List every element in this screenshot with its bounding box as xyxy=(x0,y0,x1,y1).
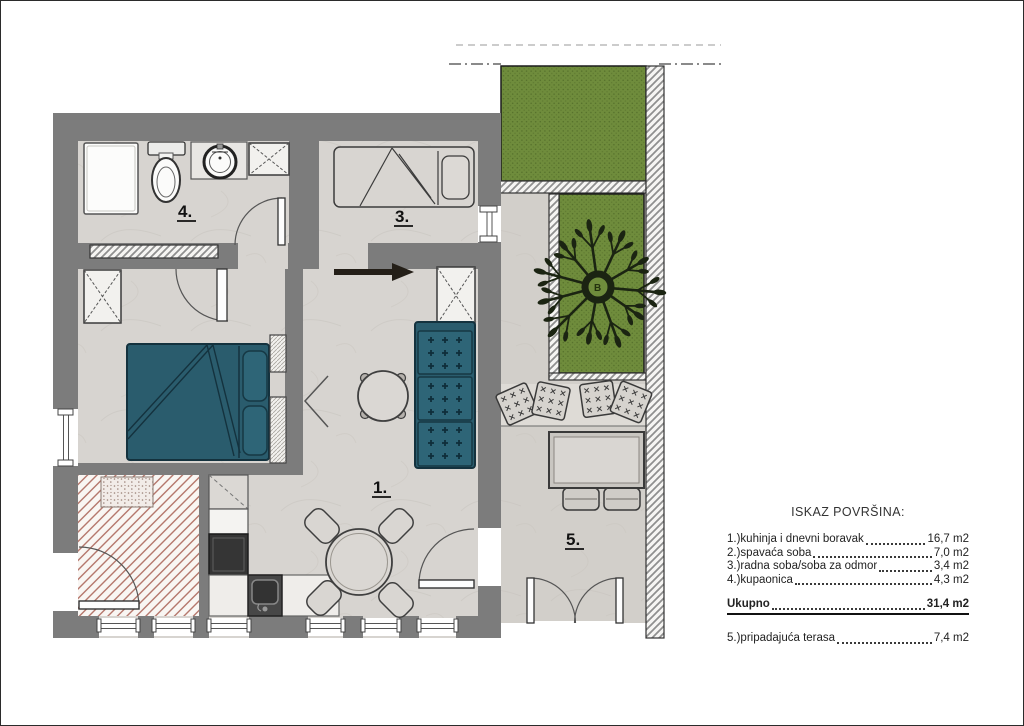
bathroom-wall-partition-hatch xyxy=(90,245,218,258)
legend-terrace-row: 5.)pripadajuća terasa7,4 m2 xyxy=(727,632,969,646)
tree-label: B xyxy=(594,283,601,294)
nightstand-bottom xyxy=(270,397,286,463)
vestibule-cabinet xyxy=(101,477,153,507)
label-work-room: 3. xyxy=(395,207,409,226)
bathroom-sink xyxy=(191,142,247,179)
label-bathroom: 4. xyxy=(178,202,192,221)
legend-row: 2.)spavaća soba7,0 m2 xyxy=(727,547,969,561)
wardrobe-hall xyxy=(437,267,475,324)
area-legend: ISKAZ POVRŠINA: 1.)kuhinja i dnevni bora… xyxy=(727,505,969,646)
single-bed xyxy=(334,147,474,207)
shower xyxy=(84,143,138,214)
terrace-table-set xyxy=(549,432,644,510)
legend-row: 1.)kuhinja i dnevni boravak16,7 m2 xyxy=(727,533,969,547)
label-terrace: 5. xyxy=(566,530,580,549)
kitchen-stove xyxy=(209,534,248,575)
bedroom-window xyxy=(53,409,78,466)
garden-upper xyxy=(501,66,646,181)
nightstand-top xyxy=(270,335,286,372)
legend-row: 3.)radna soba/soba za odmor3,4 m2 xyxy=(727,560,969,574)
legend-row: 4.)kupaonica4,3 m2 xyxy=(727,574,969,588)
coffee-table xyxy=(358,371,408,421)
garden-hatched-wall-left xyxy=(549,194,559,379)
legend-total-row: Ukupno31,4 m2 xyxy=(727,598,969,615)
dining-table xyxy=(326,529,392,595)
sofa xyxy=(415,322,475,468)
kitchen-sink xyxy=(248,575,282,616)
floor-plan-page: B 1. 3. 4. 5. ISKAZ POVRŠINA: 1.)kuhinja… xyxy=(0,0,1024,726)
washing-machine xyxy=(249,143,289,175)
hall-window xyxy=(478,206,501,242)
garden-hatched-wall-bottom xyxy=(549,373,646,380)
kitchen-cabinet xyxy=(209,509,248,534)
garden-hatched-wall-top xyxy=(498,181,646,193)
label-living-room: 1. xyxy=(373,478,387,497)
wardrobe-bedroom xyxy=(84,270,121,323)
double-bed xyxy=(127,344,269,460)
legend-title: ISKAZ POVRŠINA: xyxy=(727,505,969,519)
terrace-hatched-wall-right xyxy=(646,66,664,638)
